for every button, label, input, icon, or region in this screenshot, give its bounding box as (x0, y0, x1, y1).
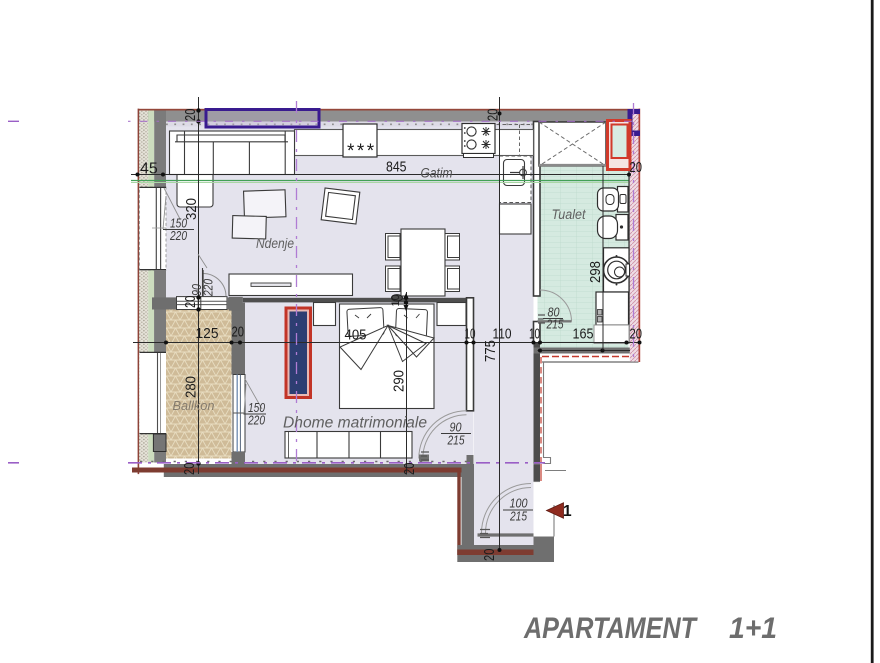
svg-text:220: 220 (169, 229, 187, 243)
svg-text:1+1: 1+1 (729, 612, 777, 645)
svg-text:405: 405 (345, 328, 367, 344)
svg-text:20: 20 (630, 160, 643, 176)
svg-text:APARTAMENT: APARTAMENT (523, 612, 698, 645)
svg-text:215: 215 (546, 318, 564, 332)
svg-text:20: 20 (402, 463, 418, 476)
svg-text:220: 220 (247, 414, 265, 428)
svg-text:Tualet: Tualet (552, 207, 587, 222)
svg-text:20: 20 (630, 327, 643, 343)
svg-text:Gatim: Gatim (421, 166, 453, 181)
svg-text:215: 215 (447, 434, 465, 448)
svg-text:845: 845 (386, 160, 407, 176)
svg-text:215: 215 (509, 510, 527, 524)
svg-text:20: 20 (182, 463, 198, 476)
svg-text:Ndenje: Ndenje (256, 236, 294, 251)
svg-text:10: 10 (465, 327, 476, 343)
svg-text:90: 90 (450, 421, 462, 435)
svg-text:10: 10 (529, 327, 540, 343)
svg-text:20: 20 (183, 109, 199, 122)
svg-text:165: 165 (573, 327, 594, 343)
svg-text:775: 775 (483, 340, 499, 362)
svg-text:100: 100 (510, 497, 528, 511)
svg-text:290: 290 (392, 370, 408, 392)
svg-text:20: 20 (232, 325, 245, 341)
svg-text:1: 1 (563, 503, 572, 520)
svg-text:298: 298 (588, 261, 604, 283)
svg-text:220: 220 (202, 279, 216, 297)
svg-text:20: 20 (486, 109, 502, 122)
svg-text:45: 45 (140, 161, 158, 178)
svg-text:20: 20 (183, 296, 199, 309)
svg-text:Dhome matrimoniale: Dhome matrimoniale (283, 415, 427, 432)
svg-text:10: 10 (390, 294, 402, 306)
svg-text:Ballkon: Ballkon (173, 398, 215, 413)
svg-text:280: 280 (184, 376, 200, 398)
svg-text:125: 125 (196, 326, 219, 342)
svg-text:20: 20 (482, 549, 498, 562)
svg-text:***: *** (347, 141, 377, 162)
